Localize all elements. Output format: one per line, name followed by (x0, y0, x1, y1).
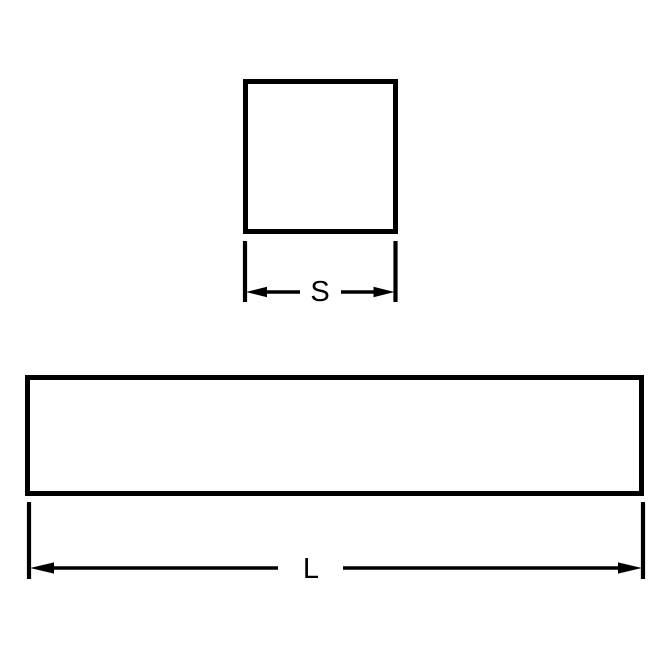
bar-side-view (28, 378, 644, 580)
bar-outline (28, 378, 642, 494)
s-arrowhead-left-icon (246, 287, 267, 297)
square-keystock-diagram: S L (0, 0, 670, 670)
square-side-dimension-label: S (310, 276, 329, 308)
l-arrowhead-left-icon (30, 562, 54, 573)
bar-length-dimension-label: L (303, 553, 319, 585)
square-cross-section-view (245, 82, 396, 303)
s-arrowhead-right-icon (374, 287, 395, 297)
technical-drawing-canvas: S L (0, 0, 670, 670)
square-cross-section-outline (246, 82, 396, 232)
l-arrowhead-right-icon (618, 562, 642, 573)
